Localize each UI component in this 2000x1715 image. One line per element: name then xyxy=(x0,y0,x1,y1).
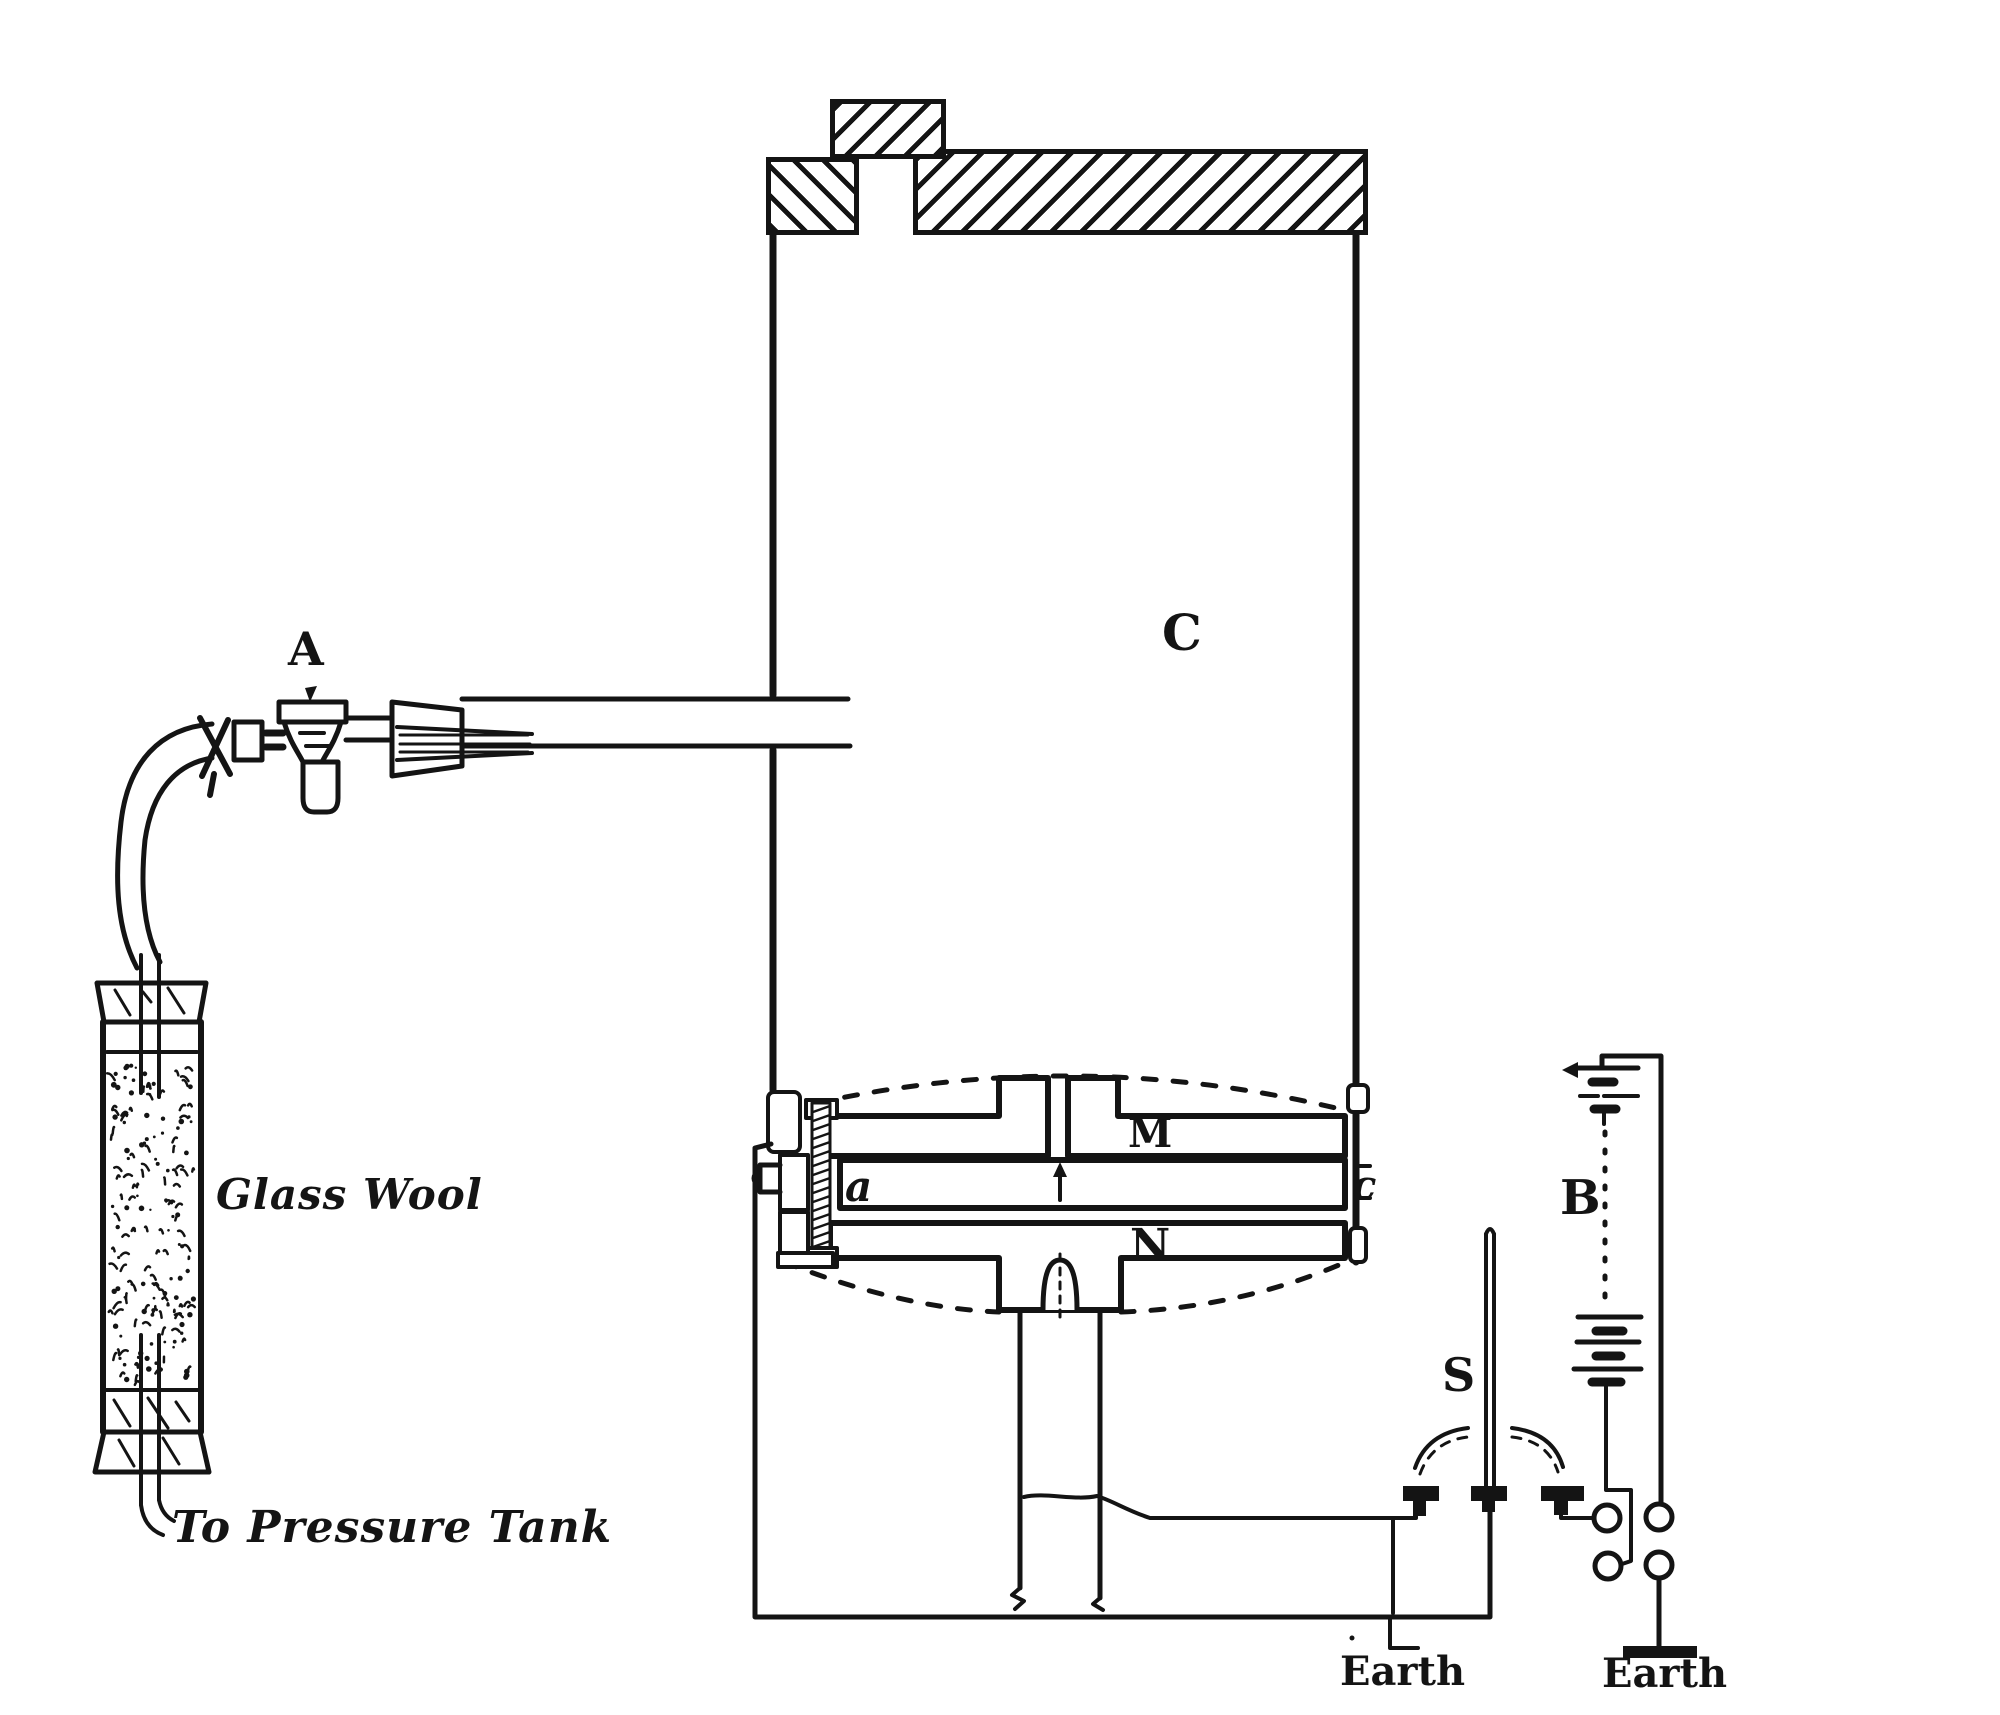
label-upper-plate: M xyxy=(1128,1114,1172,1154)
plate-middle xyxy=(840,1160,1345,1208)
left-wall-hardware xyxy=(754,1092,837,1267)
charging-rod-s xyxy=(1486,1229,1494,1486)
label-glass-wool: Glass Wool xyxy=(216,1174,483,1216)
rod-swing-arc xyxy=(1415,1428,1563,1474)
support-frame xyxy=(755,1144,1490,1617)
terminal-posts xyxy=(1403,1486,1584,1516)
terminal-t3-wire xyxy=(1561,1515,1594,1518)
pedestal xyxy=(1012,1310,1103,1610)
label-electrode-c: c xyxy=(1352,1166,1376,1206)
label-rod: S xyxy=(1442,1352,1475,1398)
chamber-walls xyxy=(773,233,1356,1262)
plate-m xyxy=(828,1078,1345,1156)
glass-wool-texture xyxy=(107,1064,196,1385)
diagram-svg xyxy=(0,0,2000,1715)
plate-n-wire xyxy=(1024,1495,1416,1613)
ground-glass-joint xyxy=(392,702,532,776)
earth-connection-left xyxy=(1350,1617,1419,1648)
label-earth-left: Earth xyxy=(1340,1652,1465,1692)
plate-n xyxy=(830,1223,1345,1310)
label-chamber: C xyxy=(1162,608,1202,658)
battery xyxy=(1562,1056,1661,1504)
label-earth-right: Earth xyxy=(1602,1654,1727,1694)
tube-connector xyxy=(234,722,283,760)
label-battery: B xyxy=(1560,1174,1601,1222)
pinch-clamp xyxy=(200,718,230,795)
glass-wool-vessel xyxy=(95,955,209,1535)
label-lower-plate: N xyxy=(1130,1224,1170,1268)
figure-canvas: A C M N a c S B Glass Wool To Pressure T… xyxy=(0,0,2000,1715)
label-stopcock: A xyxy=(288,626,324,672)
stopcock-a xyxy=(279,686,346,812)
label-electrode-a: a xyxy=(845,1166,872,1208)
earth-connection-right xyxy=(1623,1578,1697,1658)
label-pressure-tank: To Pressure Tank xyxy=(172,1506,612,1550)
battery-negative-wire xyxy=(1606,1386,1631,1564)
rubber-tube xyxy=(118,724,212,968)
